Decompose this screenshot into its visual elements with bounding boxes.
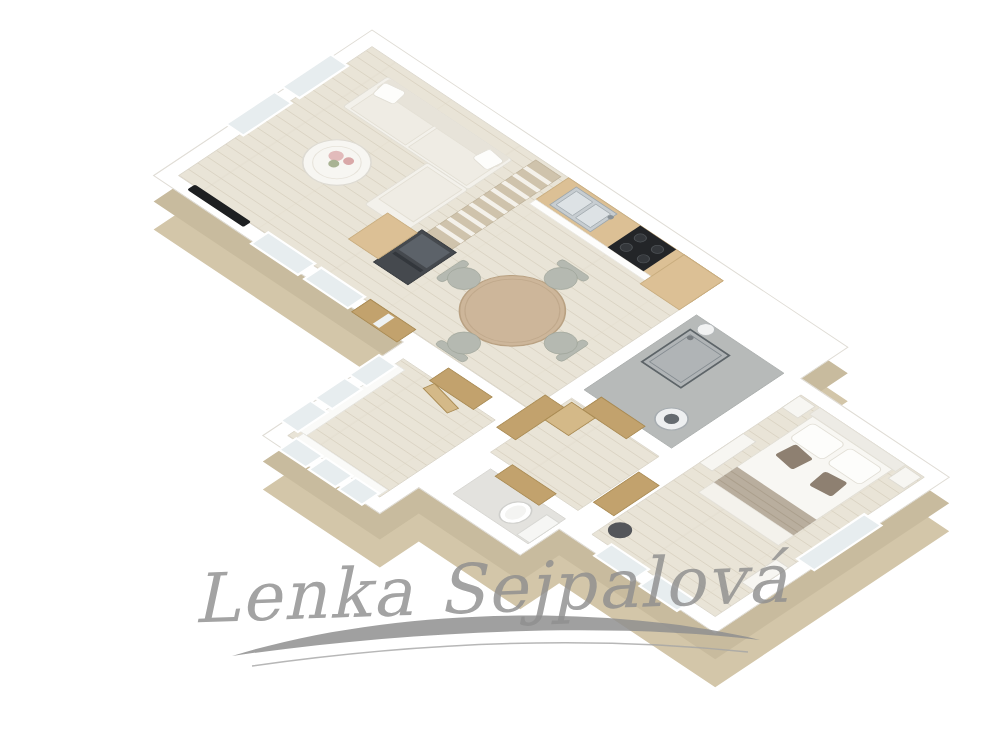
floor-plan-page: Lenka Sejpalová [0, 0, 983, 737]
floor-plan-render: Lenka Sejpalová [0, 0, 983, 737]
